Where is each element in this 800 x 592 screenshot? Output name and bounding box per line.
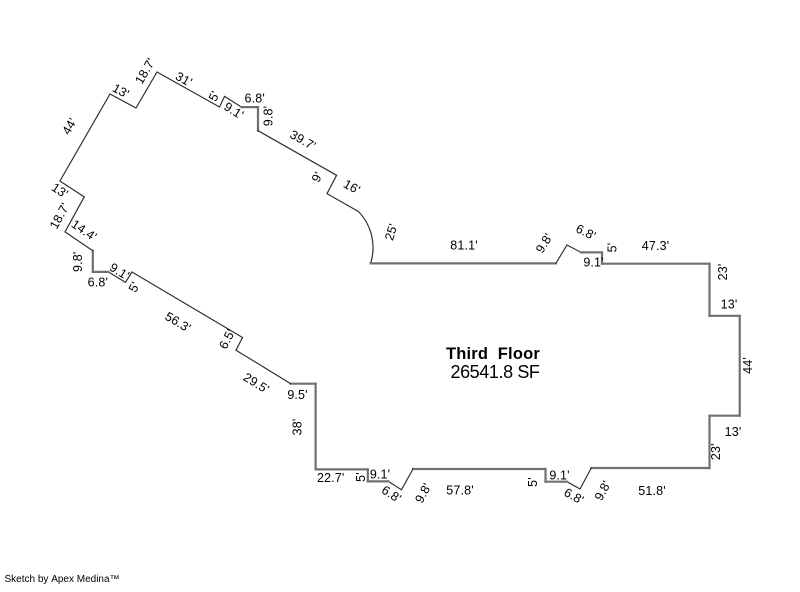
svg-text:23': 23' (716, 264, 730, 281)
svg-text:57.8': 57.8' (446, 483, 473, 497)
svg-text:6.5': 6.5' (216, 327, 238, 352)
svg-text:9.8': 9.8' (71, 252, 85, 272)
svg-text:23': 23' (709, 443, 723, 460)
svg-text:9.5': 9.5' (287, 388, 307, 402)
svg-text:9': 9' (309, 170, 326, 185)
svg-text:18.7': 18.7' (132, 56, 158, 87)
svg-text:6.8': 6.8' (88, 276, 108, 290)
svg-text:Third Floor: Third Floor (446, 345, 540, 363)
svg-text:51.8': 51.8' (638, 484, 665, 498)
svg-text:5': 5' (354, 472, 368, 482)
svg-text:13': 13' (725, 425, 742, 439)
svg-text:6.8': 6.8' (245, 91, 265, 105)
svg-text:6.8': 6.8' (574, 222, 598, 244)
svg-text:9.8': 9.8' (261, 106, 275, 126)
svg-text:9.1': 9.1' (583, 255, 603, 269)
svg-text:44': 44' (741, 357, 755, 374)
svg-text:5': 5' (526, 477, 540, 487)
svg-text:16': 16' (341, 177, 362, 197)
svg-text:Sketch by Apex Medina™: Sketch by Apex Medina™ (5, 574, 120, 585)
svg-text:29.5': 29.5' (241, 370, 272, 396)
svg-text:13': 13' (721, 297, 738, 311)
svg-text:13': 13' (49, 180, 71, 201)
svg-text:9.1': 9.1' (549, 468, 569, 482)
svg-text:9.1': 9.1' (221, 99, 246, 122)
svg-text:26541.8 SF: 26541.8 SF (450, 362, 539, 382)
svg-text:6.8': 6.8' (379, 483, 404, 506)
svg-text:31': 31' (173, 69, 194, 89)
svg-text:9.1': 9.1' (107, 260, 132, 283)
svg-text:14.4': 14.4' (69, 217, 100, 244)
svg-text:5': 5' (126, 280, 143, 295)
svg-text:5': 5' (605, 243, 619, 253)
svg-text:22.7': 22.7' (317, 471, 344, 485)
svg-text:81.1': 81.1' (450, 238, 477, 252)
svg-text:56.3': 56.3' (162, 309, 193, 335)
svg-text:44': 44' (59, 116, 79, 137)
svg-text:38': 38' (290, 419, 304, 436)
svg-text:13': 13' (110, 81, 131, 101)
svg-text:9.8': 9.8' (533, 231, 556, 256)
svg-text:9.8': 9.8' (412, 481, 434, 506)
svg-text:9.1': 9.1' (370, 467, 390, 481)
svg-text:9.8': 9.8' (592, 478, 614, 503)
svg-text:25': 25' (382, 222, 400, 242)
svg-text:6.8': 6.8' (562, 485, 587, 507)
svg-text:47.3': 47.3' (642, 239, 669, 253)
